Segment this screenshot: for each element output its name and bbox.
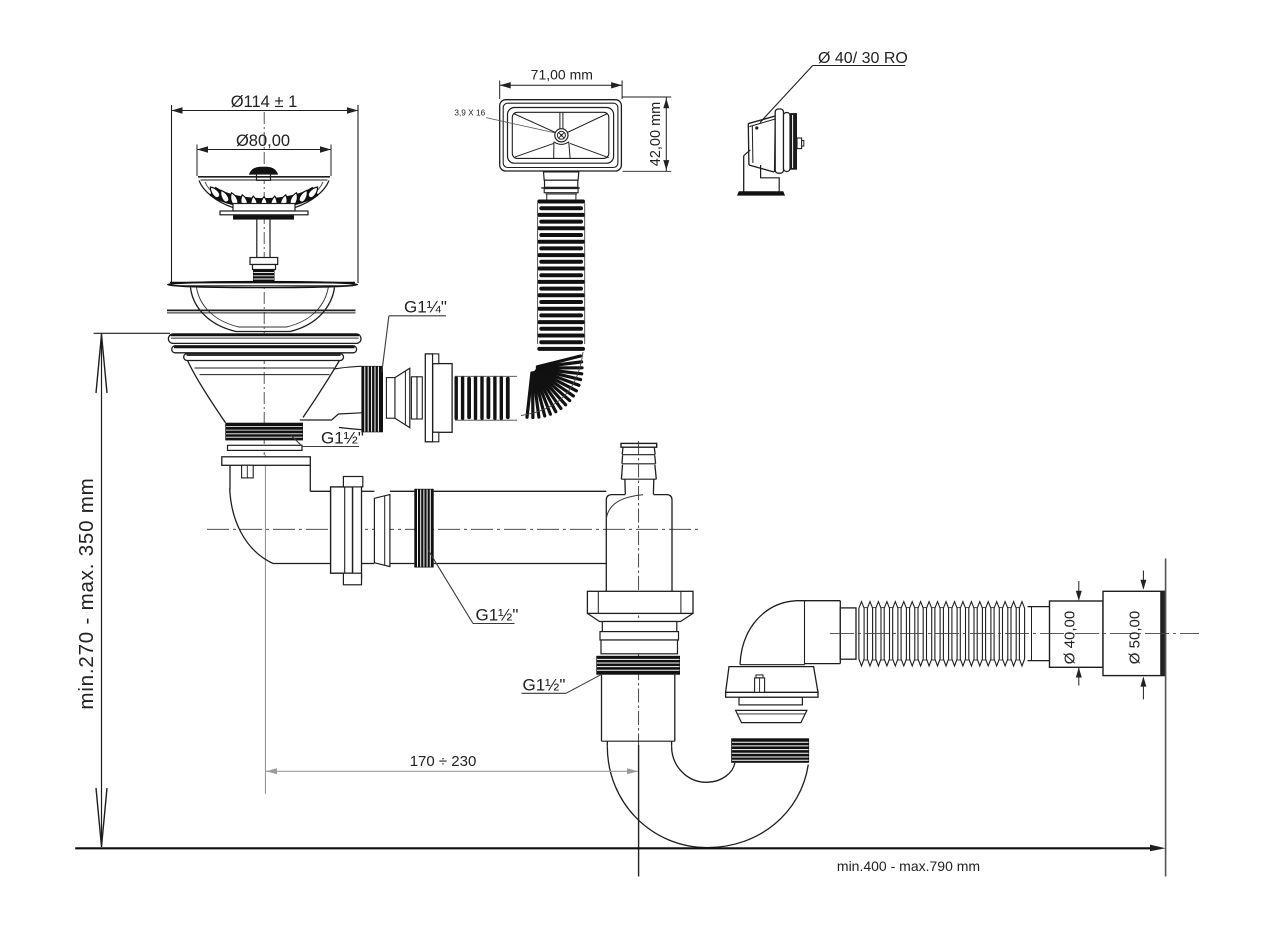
svg-text:min.400 - max.790 mm: min.400 - max.790 mm	[837, 858, 980, 874]
svg-text:G1¼": G1¼"	[404, 298, 447, 317]
svg-text:G1½": G1½"	[321, 429, 364, 448]
svg-text:Ø 40/ 30 RO: Ø 40/ 30 RO	[818, 50, 908, 67]
svg-text:3,9 X 16: 3,9 X 16	[454, 108, 485, 118]
svg-text:min.270 - max. 350 mm: min.270 - max. 350 mm	[75, 477, 98, 709]
svg-text:G1½": G1½"	[523, 676, 566, 695]
svg-text:Ø80,00: Ø80,00	[236, 132, 290, 150]
svg-text:71,00 mm: 71,00 mm	[531, 67, 593, 83]
svg-text:G1½": G1½"	[476, 606, 519, 625]
svg-text:Ø 50,00: Ø 50,00	[1127, 611, 1144, 664]
svg-text:Ø114 ± 1: Ø114 ± 1	[231, 93, 298, 111]
svg-text:42,00 mm: 42,00 mm	[648, 102, 664, 166]
svg-text:170 ÷ 230: 170 ÷ 230	[410, 753, 477, 770]
svg-text:Ø 40,00: Ø 40,00	[1062, 611, 1079, 664]
